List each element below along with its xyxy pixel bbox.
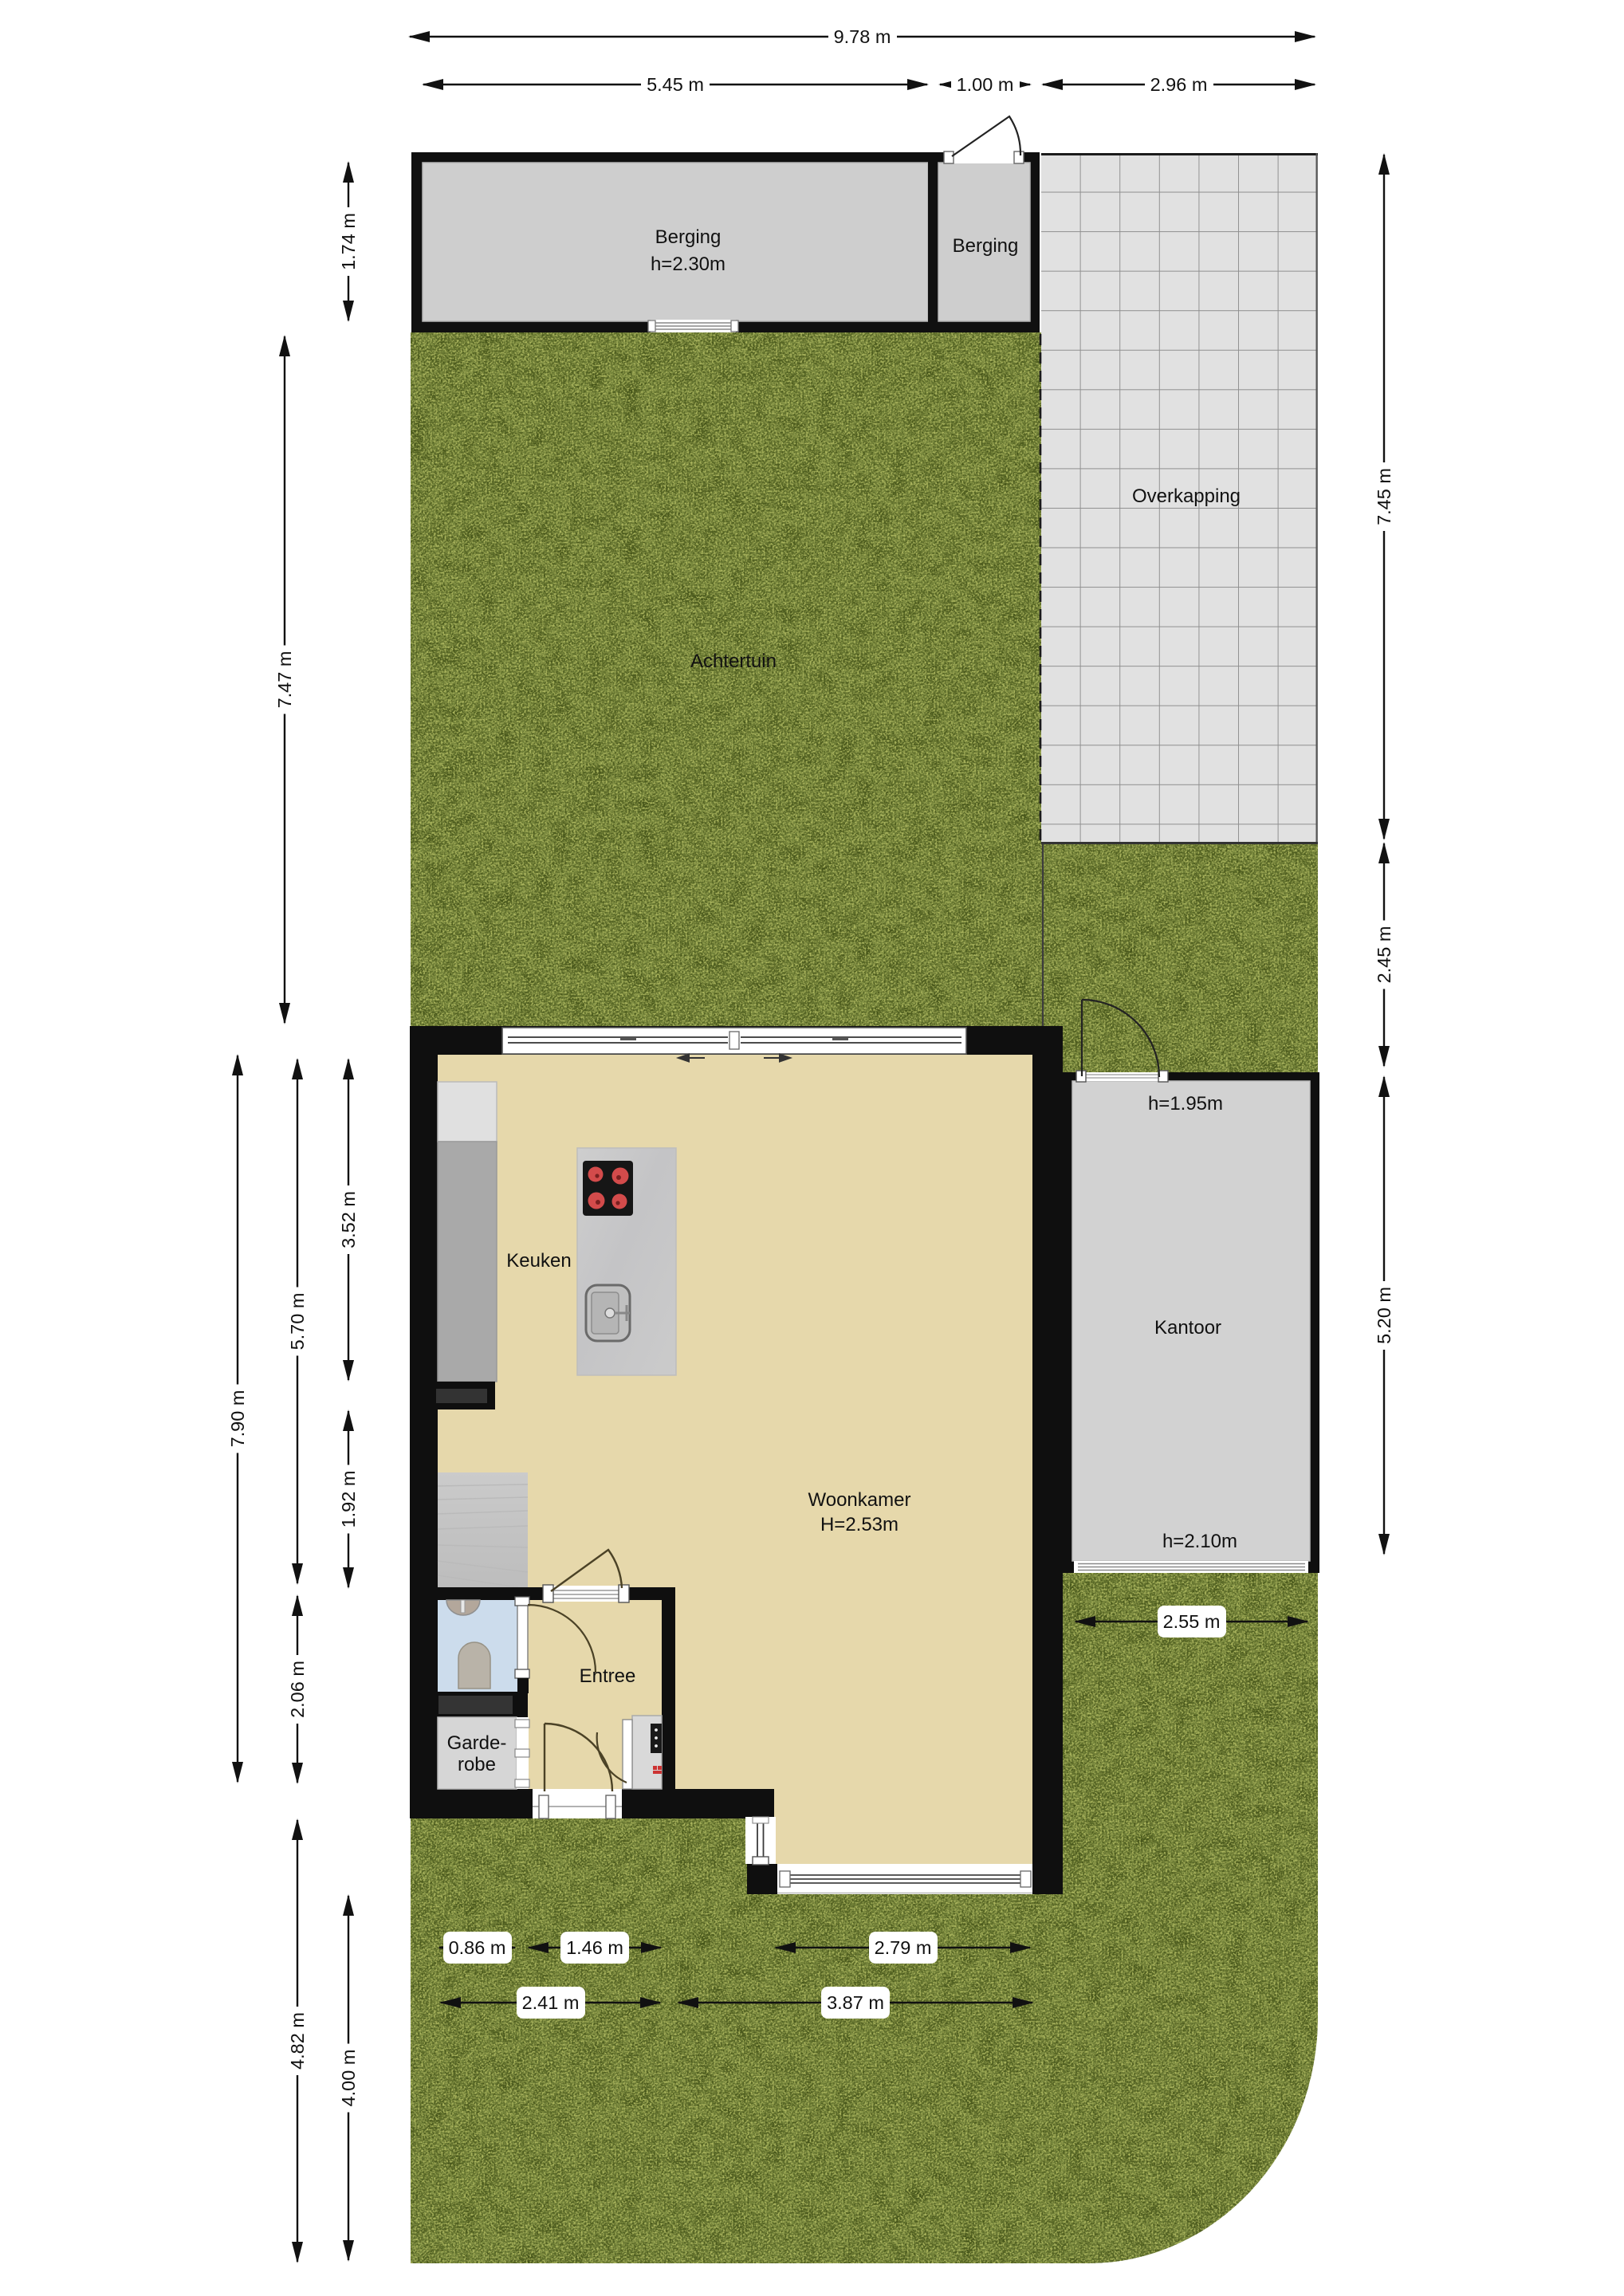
svg-text:2.45 m: 2.45 m: [1374, 926, 1394, 984]
svg-text:3.87 m: 3.87 m: [827, 1992, 884, 2013]
svg-text:4.00 m: 4.00 m: [338, 2050, 359, 2107]
svg-text:Entree: Entree: [580, 1665, 636, 1687]
svg-text:Berging: Berging: [953, 235, 1019, 257]
svg-text:Garde-: Garde-: [447, 1732, 507, 1754]
svg-text:4.82 m: 4.82 m: [287, 2012, 308, 2070]
svg-text:Berging: Berging: [655, 226, 722, 248]
svg-text:Overkapping: Overkapping: [1132, 486, 1241, 507]
svg-text:Keuken: Keuken: [506, 1250, 571, 1272]
svg-text:Woonkamer: Woonkamer: [808, 1489, 911, 1511]
svg-text:7.45 m: 7.45 m: [1374, 468, 1394, 525]
svg-text:1.46 m: 1.46 m: [566, 1937, 623, 1958]
svg-text:2.55 m: 2.55 m: [1163, 1611, 1221, 1632]
svg-text:Achtertuin: Achtertuin: [690, 651, 777, 672]
svg-text:9.78 m: 9.78 m: [834, 26, 891, 47]
svg-text:1.00 m: 1.00 m: [957, 74, 1014, 95]
svg-text:Kantoor: Kantoor: [1154, 1317, 1221, 1339]
svg-text:H=2.53m: H=2.53m: [820, 1514, 899, 1535]
svg-text:7.47 m: 7.47 m: [274, 651, 295, 709]
svg-text:3.52 m: 3.52 m: [338, 1191, 359, 1248]
svg-text:1.92 m: 1.92 m: [338, 1471, 359, 1528]
svg-text:5.45 m: 5.45 m: [647, 74, 704, 95]
svg-text:0.86 m: 0.86 m: [449, 1937, 506, 1958]
svg-text:2.06 m: 2.06 m: [287, 1661, 308, 1718]
svg-text:2.79 m: 2.79 m: [875, 1937, 932, 1958]
svg-text:h=1.95m: h=1.95m: [1148, 1093, 1223, 1115]
svg-text:1.74 m: 1.74 m: [338, 213, 359, 270]
svg-text:2.96 m: 2.96 m: [1150, 74, 1208, 95]
svg-text:5.20 m: 5.20 m: [1374, 1287, 1394, 1344]
svg-text:7.90 m: 7.90 m: [227, 1390, 248, 1448]
svg-text:h=2.30m: h=2.30m: [651, 254, 725, 275]
svg-text:robe: robe: [458, 1754, 496, 1775]
svg-text:h=2.10m: h=2.10m: [1162, 1531, 1237, 1552]
svg-text:2.41 m: 2.41 m: [522, 1992, 580, 2013]
svg-text:5.70 m: 5.70 m: [287, 1293, 308, 1350]
